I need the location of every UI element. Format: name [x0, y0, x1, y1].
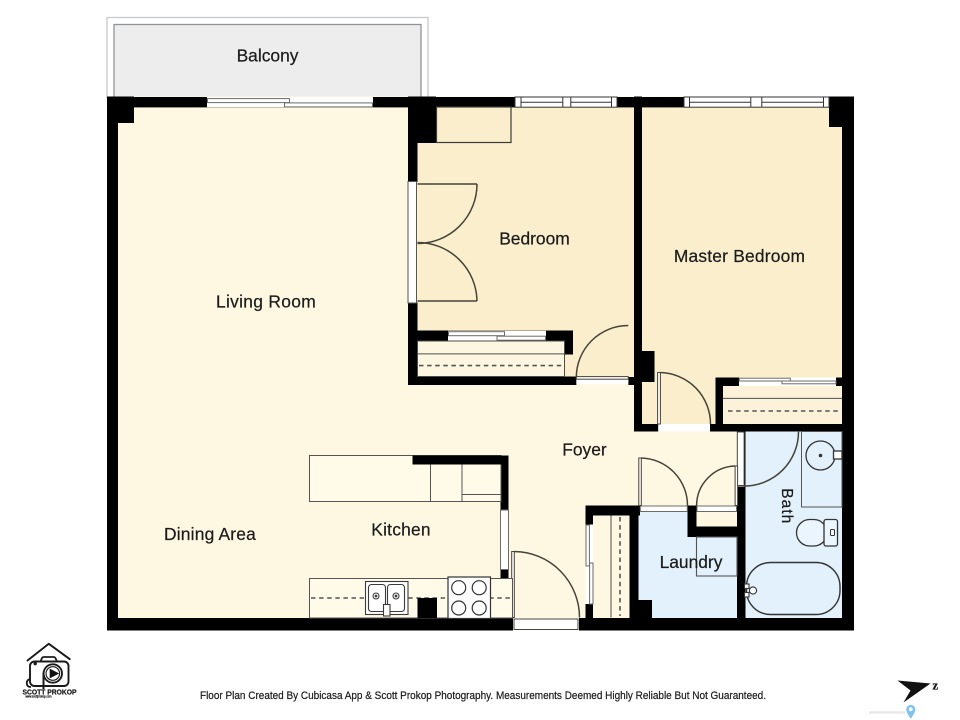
svg-text:Bath: Bath [778, 488, 795, 523]
svg-text:Master Bedroom: Master Bedroom [674, 246, 805, 266]
svg-text:z: z [932, 677, 938, 692]
svg-text:Living Room: Living Room [216, 291, 316, 311]
svg-text:Foyer: Foyer [562, 439, 607, 459]
svg-text:Dining Area: Dining Area [164, 524, 256, 544]
svg-text:Floor Plan Created By Cubicasa: Floor Plan Created By Cubicasa App & Sco… [200, 690, 766, 702]
svg-text:Bedroom: Bedroom [499, 228, 570, 248]
svg-text:Balcony: Balcony [237, 46, 299, 66]
svg-text:Kitchen: Kitchen [371, 519, 430, 539]
svg-text:Laundry: Laundry [660, 552, 723, 572]
svg-text:www.scottprokop.com: www.scottprokop.com [26, 694, 52, 698]
